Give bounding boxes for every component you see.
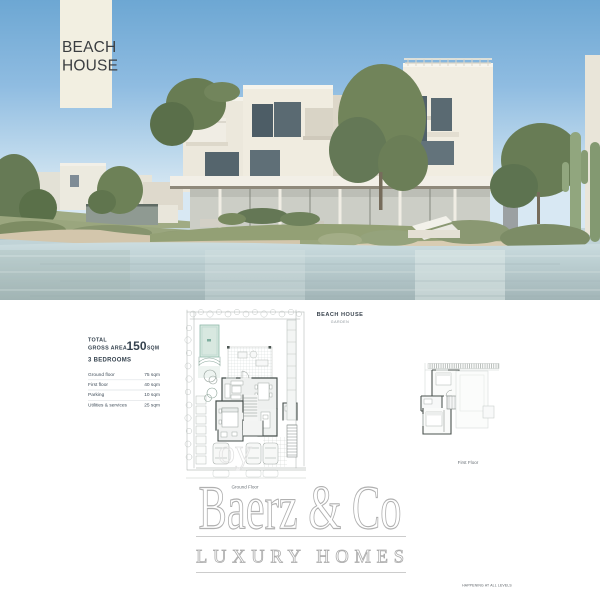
svg-text:LUXURY HOMES: LUXURY HOMES bbox=[196, 548, 404, 568]
svg-text:HOUSE: HOUSE bbox=[62, 58, 118, 75]
svg-text:BEACH: BEACH bbox=[62, 39, 116, 56]
svg-text:TOTAL: TOTAL bbox=[88, 338, 107, 344]
svg-text:HAPPENING AT ALL LEVELS: HAPPENING AT ALL LEVELS bbox=[462, 584, 512, 588]
svg-text:GARDEN: GARDEN bbox=[331, 320, 349, 324]
svg-text:SQM: SQM bbox=[147, 345, 159, 351]
svg-text:GROSS AREA: GROSS AREA bbox=[88, 346, 127, 352]
svg-text:25 sqm: 25 sqm bbox=[144, 403, 160, 409]
svg-text:First Floor: First Floor bbox=[458, 460, 479, 465]
svg-text:oy: oy bbox=[218, 434, 252, 471]
svg-text:Baerz & Co: Baerz & Co bbox=[199, 475, 402, 543]
svg-text:Utilities & services: Utilities & services bbox=[88, 403, 128, 409]
svg-text:First floor: First floor bbox=[88, 382, 108, 388]
svg-text:Ground floor: Ground floor bbox=[88, 372, 115, 378]
svg-text:3 BEDROOMS: 3 BEDROOMS bbox=[88, 358, 131, 364]
svg-text:BEACH HOUSE: BEACH HOUSE bbox=[317, 312, 364, 318]
svg-text:Parking: Parking bbox=[88, 392, 105, 398]
svg-text:75 sqm: 75 sqm bbox=[144, 372, 160, 378]
svg-text:40 sqm: 40 sqm bbox=[144, 382, 160, 388]
svg-text:10 sqm: 10 sqm bbox=[144, 392, 160, 398]
svg-text:150: 150 bbox=[127, 339, 147, 353]
